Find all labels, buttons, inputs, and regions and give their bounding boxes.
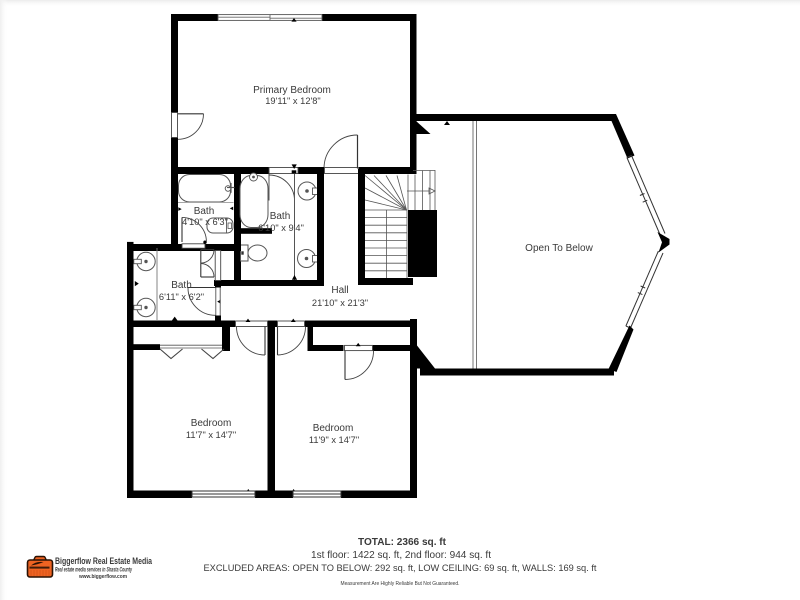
svg-text:www.biggerflow.com: www.biggerflow.com: [78, 574, 127, 580]
svg-text:Primary Bedroom: Primary Bedroom: [253, 85, 331, 96]
svg-text:Hall: Hall: [331, 285, 348, 296]
svg-text:EXCLUDED AREAS: OPEN TO BELOW:: EXCLUDED AREAS: OPEN TO BELOW: 292 sq. f…: [204, 563, 597, 574]
svg-text:Measurement Are Highly Reliabl: Measurement Are Highly Reliable But Not …: [341, 581, 460, 587]
svg-text:6'11" x 6'2": 6'11" x 6'2": [159, 292, 204, 302]
svg-text:1st floor: 1422 sq. ft, 2nd fl: 1st floor: 1422 sq. ft, 2nd floor: 944 s…: [311, 550, 491, 561]
svg-text:TOTAL: 2366 sq. ft: TOTAL: 2366 sq. ft: [358, 537, 447, 548]
svg-text:11'9" x 14'7": 11'9" x 14'7": [309, 435, 359, 445]
svg-text:11'7" x 14'7": 11'7" x 14'7": [186, 430, 236, 440]
svg-text:Bath: Bath: [194, 206, 215, 217]
svg-text:21'10" x 21'3": 21'10" x 21'3": [312, 298, 368, 308]
svg-text:Bedroom: Bedroom: [313, 423, 354, 434]
svg-text:Biggerflow Real Estate Media: Biggerflow Real Estate Media: [55, 556, 152, 566]
svg-text:6'10" x 9'4": 6'10" x 9'4": [258, 223, 304, 233]
svg-text:Bedroom: Bedroom: [191, 418, 232, 429]
svg-text:Bath: Bath: [270, 211, 291, 222]
svg-text:Open To Below: Open To Below: [525, 243, 593, 254]
svg-text:19'11" x 12'8": 19'11" x 12'8": [265, 96, 320, 106]
svg-text:4'10" x 6'3": 4'10" x 6'3": [182, 217, 228, 227]
svg-text:Bath: Bath: [171, 280, 192, 291]
svg-text:Real estate media services in: Real estate media services in Shasta Cou…: [55, 568, 132, 574]
